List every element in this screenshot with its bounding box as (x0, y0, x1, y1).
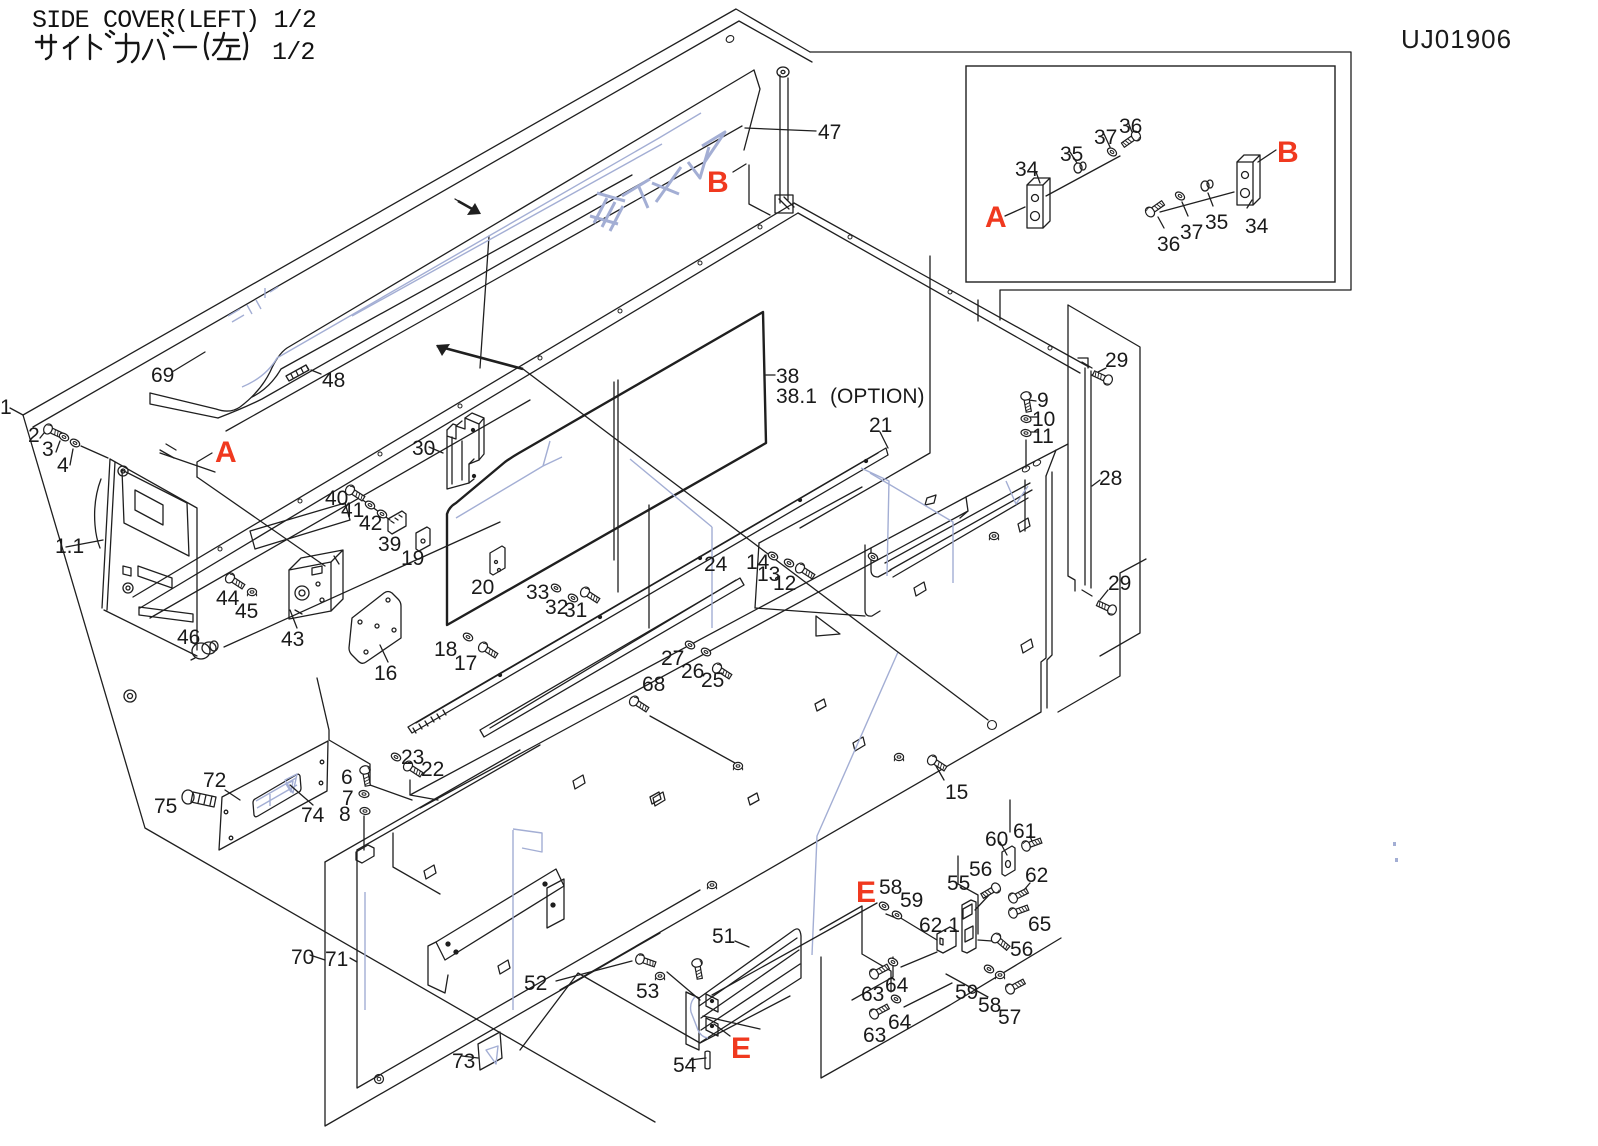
svg-text:28: 28 (1099, 467, 1122, 490)
svg-text:35: 35 (1205, 211, 1228, 234)
svg-text:SIDE COVER(LEFT) 1/2: SIDE COVER(LEFT) 1/2 (32, 6, 316, 35)
svg-text:52: 52 (524, 972, 547, 995)
svg-text:A: A (215, 436, 237, 469)
svg-text:E: E (856, 876, 876, 909)
svg-text:1.1: 1.1 (55, 535, 84, 558)
svg-text:45: 45 (235, 600, 258, 623)
svg-text:39: 39 (378, 533, 401, 556)
svg-text:B: B (707, 166, 729, 199)
svg-text:1: 1 (0, 396, 12, 419)
svg-text:46: 46 (177, 626, 200, 649)
svg-text:17: 17 (454, 652, 477, 675)
svg-text:31: 31 (564, 599, 587, 622)
svg-text:48: 48 (322, 369, 345, 392)
svg-text:30: 30 (412, 437, 435, 460)
svg-text:15: 15 (945, 781, 968, 804)
svg-text:12: 12 (773, 572, 796, 595)
svg-text:2: 2 (28, 424, 40, 447)
svg-text:61: 61 (1013, 820, 1036, 843)
svg-text:43: 43 (281, 628, 304, 651)
svg-text:57: 57 (998, 1006, 1021, 1029)
svg-text:34: 34 (1245, 215, 1269, 238)
svg-text:63: 63 (861, 983, 884, 1006)
svg-text:11: 11 (1032, 425, 1054, 448)
svg-text:24: 24 (704, 553, 728, 576)
svg-text:54: 54 (673, 1054, 697, 1077)
svg-text:56: 56 (1010, 938, 1033, 961)
svg-text:64: 64 (885, 974, 909, 997)
svg-text:36: 36 (1157, 233, 1180, 256)
svg-text:25: 25 (701, 669, 724, 692)
svg-text:75: 75 (154, 795, 177, 818)
svg-text:68: 68 (642, 673, 665, 696)
svg-text:62: 62 (1025, 864, 1048, 887)
svg-text:47: 47 (818, 121, 841, 144)
svg-text:6: 6 (341, 766, 353, 789)
svg-text:3: 3 (42, 438, 54, 461)
svg-text:E: E (731, 1032, 751, 1065)
svg-text:42: 42 (359, 512, 382, 535)
svg-text:59: 59 (900, 889, 923, 912)
svg-text:53: 53 (636, 980, 659, 1003)
svg-text:74: 74 (301, 804, 325, 827)
svg-text:34: 34 (1015, 158, 1039, 181)
svg-text:1/2: 1/2 (272, 38, 315, 67)
svg-text:37: 37 (1180, 221, 1203, 244)
svg-text:69: 69 (151, 364, 174, 387)
svg-text:29: 29 (1108, 572, 1131, 595)
svg-text:4: 4 (57, 454, 69, 477)
svg-text:36: 36 (1119, 115, 1142, 138)
svg-text:59: 59 (955, 981, 978, 1004)
svg-text:65: 65 (1028, 913, 1051, 936)
svg-text:21: 21 (869, 414, 892, 437)
svg-text:56: 56 (969, 858, 992, 881)
svg-text:60: 60 (985, 828, 1008, 851)
svg-text:22: 22 (421, 758, 444, 781)
svg-text:51: 51 (712, 925, 735, 948)
svg-text:72: 72 (203, 769, 226, 792)
svg-text:73: 73 (452, 1050, 475, 1073)
svg-text:29: 29 (1105, 349, 1128, 372)
svg-text:70: 70 (291, 946, 314, 969)
svg-text:55: 55 (947, 872, 970, 895)
svg-text:63: 63 (863, 1024, 886, 1047)
svg-text:A: A (985, 201, 1007, 234)
svg-text:UJ01906: UJ01906 (1401, 24, 1512, 54)
svg-text:16: 16 (374, 662, 397, 685)
svg-text:(OPTION): (OPTION) (830, 385, 925, 408)
svg-text:37: 37 (1094, 126, 1117, 149)
svg-text:20: 20 (471, 576, 494, 599)
svg-text:19: 19 (401, 547, 424, 570)
svg-text:62.1: 62.1 (919, 914, 960, 937)
svg-text:71: 71 (325, 948, 348, 971)
svg-text:B: B (1277, 136, 1299, 169)
svg-text:58: 58 (879, 876, 902, 899)
svg-text:64: 64 (888, 1011, 912, 1034)
svg-text:35: 35 (1060, 143, 1083, 166)
svg-text:8: 8 (339, 803, 351, 826)
svg-text:38.1: 38.1 (776, 385, 817, 408)
